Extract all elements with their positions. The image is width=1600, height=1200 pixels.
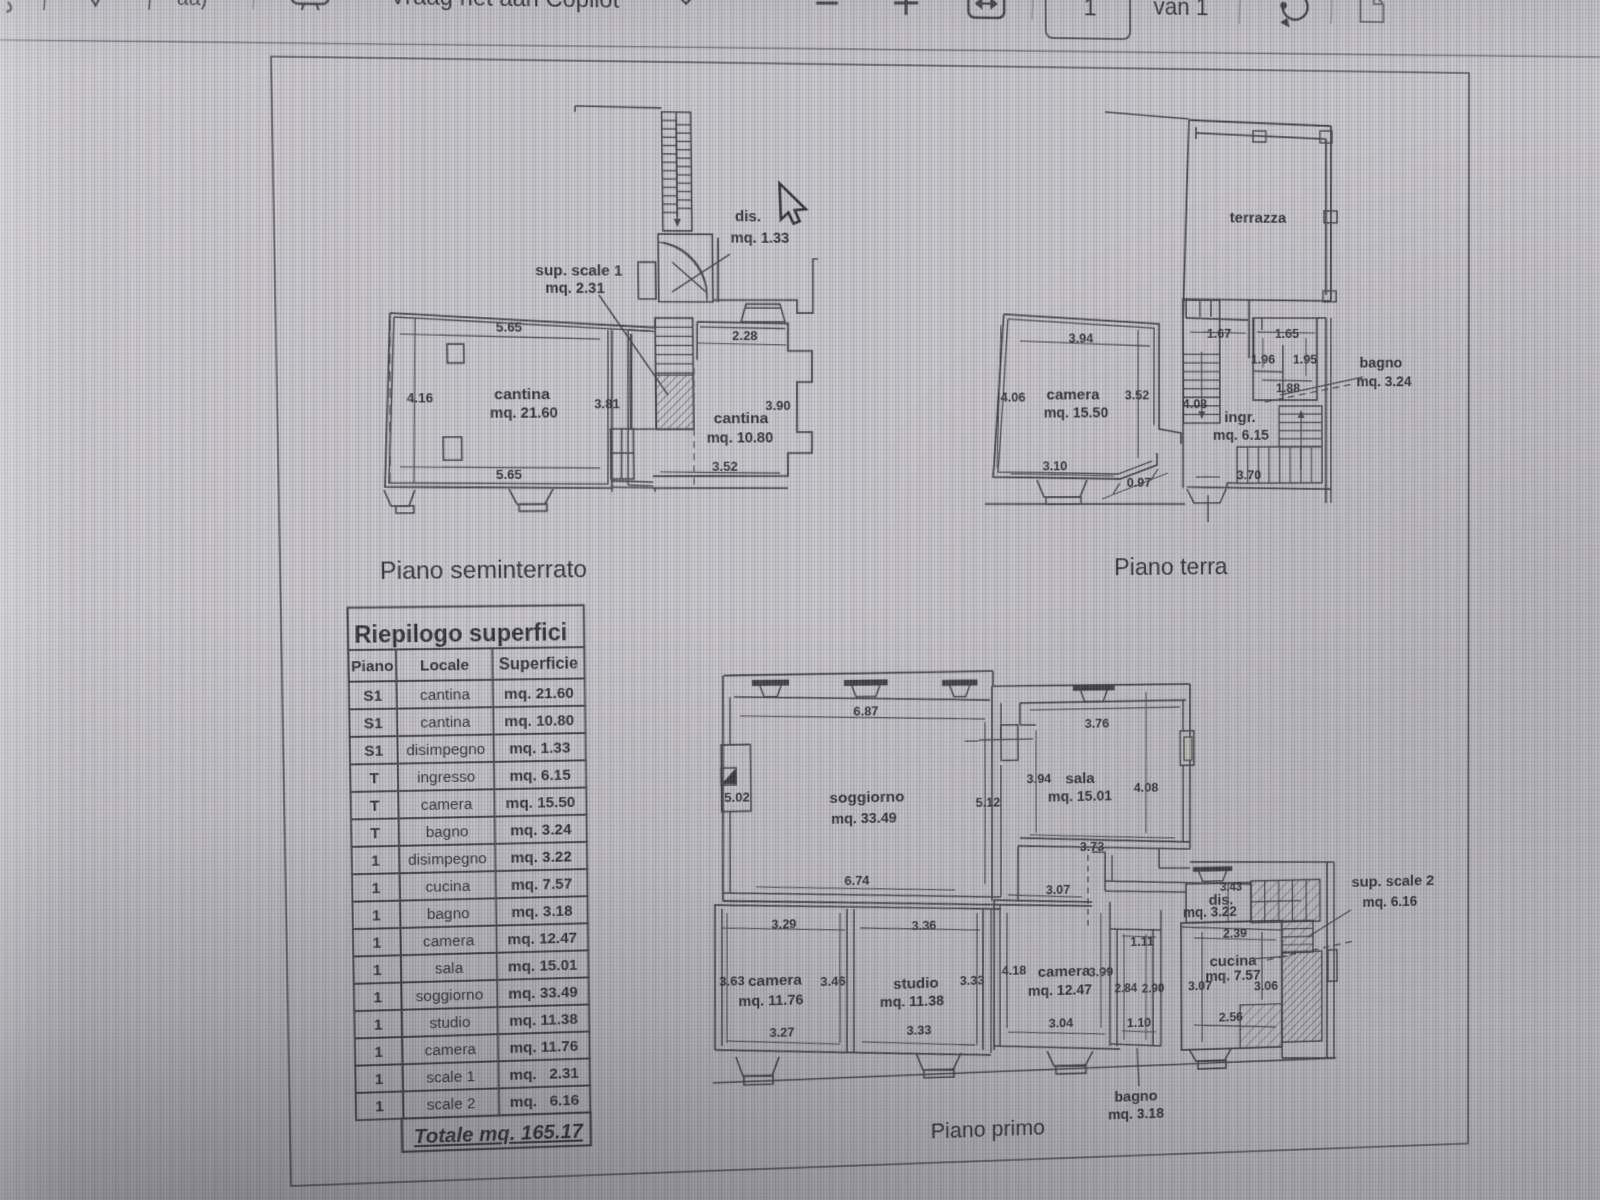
svg-text:studio: studio	[429, 1014, 470, 1032]
svg-text:1: 1	[373, 989, 382, 1006]
svg-text:2.90: 2.90	[1142, 981, 1165, 995]
svg-text:mq. 1.33: mq. 1.33	[731, 231, 790, 247]
svg-text:mq. 15.50: mq. 15.50	[506, 794, 576, 812]
svg-text:5.65: 5.65	[496, 466, 522, 481]
svg-text:mq. 3.22: mq. 3.22	[511, 848, 572, 866]
svg-text:4.18: 4.18	[1002, 962, 1027, 977]
svg-text:5.02: 5.02	[724, 789, 750, 804]
svg-text:camera: camera	[748, 971, 803, 990]
svg-text:T: T	[370, 825, 380, 842]
svg-text:6.87: 6.87	[853, 703, 878, 718]
svg-text:mq. 21.60: mq. 21.60	[504, 685, 574, 703]
svg-text:mq. 11.76: mq. 11.76	[738, 992, 803, 1010]
svg-text:mq. 10.80: mq. 10.80	[707, 430, 774, 446]
svg-text:dis.: dis.	[735, 208, 761, 225]
svg-text:3.52: 3.52	[712, 458, 738, 473]
svg-text:3.52: 3.52	[1125, 387, 1150, 402]
svg-text:Superficie: Superficie	[499, 653, 578, 673]
svg-text:mq. 1.33: mq. 1.33	[509, 739, 571, 757]
svg-text:3.04: 3.04	[1049, 1015, 1074, 1030]
svg-text:studio: studio	[893, 974, 939, 993]
svg-text:3.07: 3.07	[1188, 978, 1212, 993]
svg-text:mq. 6.16: mq. 6.16	[510, 1092, 580, 1111]
svg-text:camera: camera	[421, 796, 473, 814]
svg-text:mq. 11.38: mq. 11.38	[880, 993, 945, 1010]
svg-text:camera: camera	[1046, 385, 1100, 403]
svg-text:Piano terra: Piano terra	[1114, 554, 1228, 581]
svg-text:mq. 7.57: mq. 7.57	[1205, 967, 1260, 984]
svg-text:mq. 12.47: mq. 12.47	[1028, 982, 1092, 999]
svg-text:disimpegno: disimpegno	[408, 850, 487, 869]
svg-text:S1: S1	[364, 715, 383, 732]
svg-text:mq. 3.24: mq. 3.24	[510, 821, 571, 839]
svg-text:1: 1	[372, 880, 381, 897]
svg-text:mq. 15.50: mq. 15.50	[1044, 405, 1109, 421]
svg-text:1: 1	[375, 1098, 384, 1115]
svg-text:Locale: Locale	[420, 657, 469, 675]
svg-text:S1: S1	[363, 687, 382, 704]
svg-text:mq. 33.49: mq. 33.49	[508, 984, 578, 1003]
svg-text:mq. 2.31: mq. 2.31	[509, 1065, 579, 1084]
svg-text:3.63: 3.63	[719, 973, 745, 989]
svg-text:camera: camera	[1038, 962, 1091, 981]
svg-text:1: 1	[371, 852, 380, 869]
svg-text:sup. scale 2: sup. scale 2	[1352, 872, 1435, 891]
svg-text:camera: camera	[423, 932, 475, 950]
svg-text:sala: sala	[435, 960, 464, 978]
svg-text:scale 1: scale 1	[426, 1068, 475, 1086]
svg-text:ingresso: ingresso	[417, 768, 476, 786]
svg-text:mq. 3.24: mq. 3.24	[1356, 374, 1411, 390]
svg-text:1: 1	[1083, 0, 1096, 21]
svg-text:1: 1	[373, 962, 382, 979]
svg-text:mq. 15.01: mq. 15.01	[1048, 788, 1113, 805]
svg-text:2.39: 2.39	[1223, 925, 1247, 940]
svg-text:Piano primo: Piano primo	[931, 1115, 1045, 1143]
svg-text:2.28: 2.28	[732, 328, 758, 343]
svg-text:T: T	[369, 770, 379, 787]
svg-text:bagno: bagno	[1360, 354, 1403, 371]
svg-text:mq. 33.49: mq. 33.49	[831, 810, 897, 827]
svg-text:sup. scale 1: sup. scale 1	[535, 262, 622, 280]
svg-text:mq. 15.01: mq. 15.01	[508, 957, 578, 976]
svg-text:1: 1	[375, 1071, 384, 1088]
svg-text:4.06: 4.06	[1001, 389, 1026, 404]
svg-text:3.94: 3.94	[1027, 771, 1052, 786]
svg-text:van 1: van 1	[1154, 0, 1209, 21]
svg-text:3.70: 3.70	[1237, 467, 1262, 482]
svg-text:ingr.: ingr.	[1224, 409, 1256, 427]
svg-text:3.06: 3.06	[1254, 978, 1278, 993]
svg-text:scale 2: scale 2	[427, 1095, 476, 1113]
svg-text:bagno: bagno	[1114, 1088, 1157, 1106]
svg-text:1.10: 1.10	[1127, 1014, 1152, 1029]
svg-text:soggiorno: soggiorno	[416, 986, 484, 1005]
svg-text:cantina: cantina	[420, 714, 470, 732]
svg-text:3.36: 3.36	[911, 917, 936, 932]
svg-text:1: 1	[374, 1016, 383, 1033]
svg-text:cantina: cantina	[714, 409, 770, 427]
svg-text:5.12: 5.12	[976, 794, 1001, 809]
svg-text:3.33: 3.33	[907, 1022, 932, 1037]
svg-text:3.81: 3.81	[594, 396, 620, 411]
svg-text:aa): aa)	[176, 0, 207, 11]
svg-text:mq. 3.18: mq. 3.18	[1108, 1106, 1164, 1123]
svg-text:bagno: bagno	[427, 905, 470, 923]
svg-text:cantina: cantina	[420, 686, 470, 704]
svg-text:0.97: 0.97	[1127, 474, 1152, 489]
svg-text:soggiorno: soggiorno	[829, 788, 904, 807]
svg-text:camera: camera	[425, 1041, 477, 1059]
svg-text:5.65: 5.65	[496, 319, 522, 334]
svg-text:2.84: 2.84	[1115, 981, 1138, 995]
svg-text:Piano: Piano	[351, 658, 394, 676]
svg-text:mq. 11.38: mq. 11.38	[509, 1011, 578, 1030]
svg-text:mq. 7.57: mq. 7.57	[511, 875, 572, 893]
svg-text:3.07: 3.07	[1046, 881, 1071, 896]
svg-text:mq. 6.16: mq. 6.16	[1363, 893, 1418, 910]
svg-text:mq. 2.31: mq. 2.31	[545, 281, 605, 297]
svg-text:1.95: 1.95	[1293, 352, 1317, 367]
svg-text:mq. 11.76: mq. 11.76	[509, 1038, 578, 1057]
svg-text:disimpegno: disimpegno	[406, 741, 485, 759]
svg-text:3.90: 3.90	[765, 397, 791, 412]
svg-text:sala: sala	[1065, 769, 1095, 787]
svg-text:1: 1	[372, 907, 381, 924]
svg-text:6.74: 6.74	[844, 872, 869, 887]
svg-text:bagno: bagno	[425, 823, 468, 841]
svg-text:3.27: 3.27	[769, 1024, 795, 1040]
svg-text:Piano seminterrato: Piano seminterrato	[380, 557, 587, 585]
svg-text:mq. 6.15: mq. 6.15	[509, 767, 570, 785]
svg-text:mq. 21.60: mq. 21.60	[490, 406, 558, 422]
svg-text:mq. 3.18: mq. 3.18	[511, 903, 572, 921]
svg-text:cucina: cucina	[425, 878, 470, 896]
svg-text:terrazza: terrazza	[1230, 208, 1287, 226]
svg-text:T: T	[370, 797, 380, 814]
svg-text:3.76: 3.76	[1085, 715, 1110, 730]
svg-text:1: 1	[374, 1044, 383, 1061]
svg-text:1.11: 1.11	[1130, 933, 1154, 948]
svg-text:3.46: 3.46	[820, 973, 845, 988]
svg-text:3.33: 3.33	[960, 972, 985, 987]
svg-text:mq. 12.47: mq. 12.47	[507, 930, 577, 949]
svg-text:mq. 3.22: mq. 3.22	[1183, 904, 1237, 921]
svg-text:mq. 10.80: mq. 10.80	[504, 712, 574, 730]
svg-text:mq. 6.15: mq. 6.15	[1213, 428, 1269, 444]
svg-text:Riepilogo superfici: Riepilogo superfici	[354, 620, 567, 648]
svg-text:S1: S1	[364, 742, 383, 759]
svg-text:1: 1	[372, 934, 381, 951]
svg-text:3.10: 3.10	[1043, 458, 1068, 473]
svg-text:3.73: 3.73	[1080, 838, 1105, 853]
svg-text:cantina: cantina	[494, 385, 551, 403]
svg-text:4.16: 4.16	[407, 390, 434, 405]
svg-text:4.08: 4.08	[1183, 396, 1208, 411]
